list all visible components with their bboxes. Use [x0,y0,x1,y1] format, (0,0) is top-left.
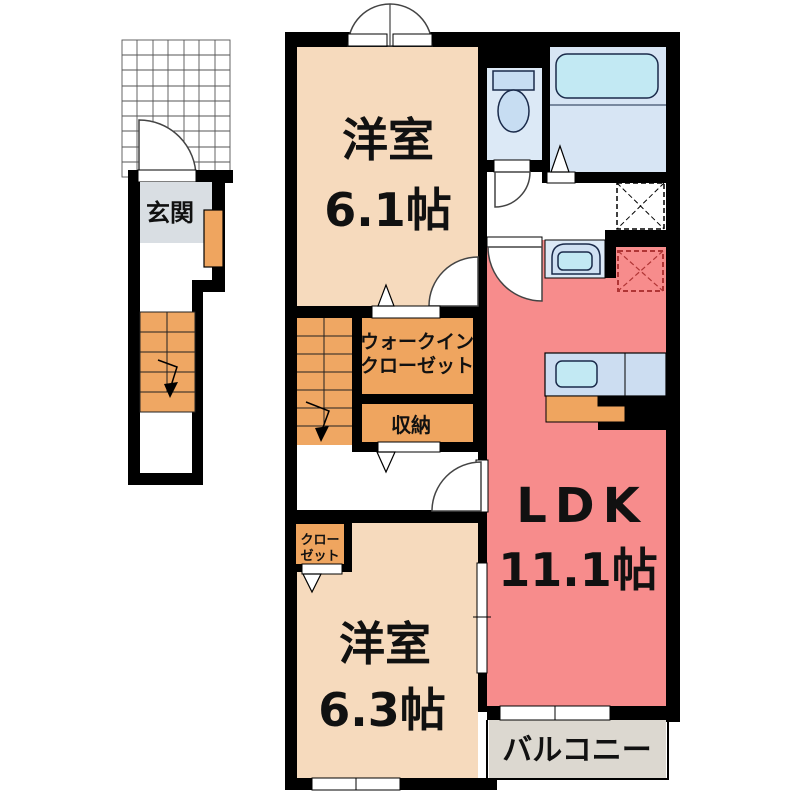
wic-opening [372,306,440,318]
closet-label-line2: ゼット [300,548,339,564]
bedroom1-name-label: 洋室 [342,113,434,167]
toilet-door-leaf [494,160,530,172]
bath-entry-gap [547,172,575,183]
ldk-door-leaf [487,237,542,247]
storage-opening [378,442,440,452]
wic-label-line2: クローゼット [360,354,474,377]
entrance-unit: 玄関 [122,40,233,485]
shoe-cabinet-icon [204,210,223,267]
hall-ldk-door-arc [432,462,481,511]
storage-label: 収納 [391,413,431,437]
bedroom2-window [312,778,400,790]
toilet-door-arc [495,172,530,207]
wic-label-line1: ウォークイン [360,331,474,353]
washing-machine-space-icon [617,183,664,229]
closet-label-line1: クロー [300,533,339,548]
storage-opening-marker [377,452,395,472]
entrance-door-leaf [138,170,196,182]
floor-plan-drawing: 玄関 [0,0,800,800]
balcony-label: バルコニー [502,733,651,768]
stairs-upper [297,318,352,445]
floor-plan: 玄関 [0,0,800,800]
ldk-size-label: 11.1帖 [498,543,658,597]
room-ldk [487,240,666,706]
bedroom1-size-label: 6.1帖 [324,183,452,237]
closet-opening [302,564,342,574]
bathtub-icon [550,54,666,105]
bedroom2-size-label: 6.3帖 [318,683,446,737]
entrance-label: 玄関 [146,199,194,227]
bedroom2-name-label: 洋室 [339,617,431,671]
ldk-name-label: LDK [516,478,648,534]
stairs-lower [140,312,195,412]
washbasin-icon [545,240,605,278]
balcony-window [500,706,610,720]
